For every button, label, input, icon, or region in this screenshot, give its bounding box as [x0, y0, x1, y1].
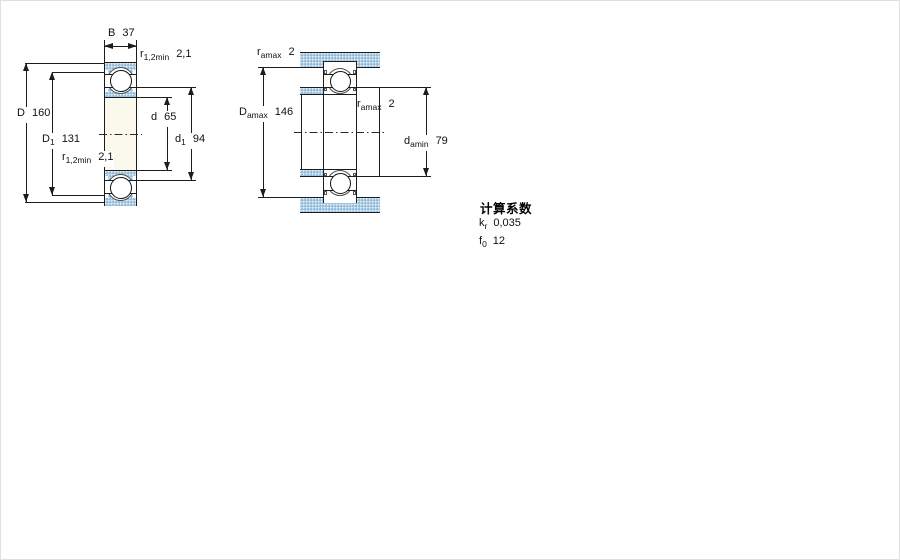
- arrowhead: [128, 43, 137, 49]
- ring-recess-notch: [133, 194, 136, 198]
- dim-label-d: d65: [150, 111, 177, 127]
- extension-line: [25, 202, 104, 203]
- dimension-line-da: [426, 87, 427, 176]
- center-line: [99, 134, 142, 135]
- ring-recess-notch: [105, 176, 108, 180]
- dim-label-r-top: r1,2min2,1: [140, 48, 191, 64]
- calc-factor-f0: f012: [479, 235, 505, 249]
- ring-recess-notch: [324, 173, 327, 176]
- ball-bottom: [330, 173, 351, 194]
- arrowhead: [104, 43, 113, 49]
- arrowhead: [260, 189, 266, 197]
- extension-line: [357, 176, 431, 177]
- ball-top: [110, 70, 132, 92]
- ring-recess-notch: [133, 70, 136, 74]
- arrowhead: [164, 162, 170, 170]
- extension-line: [25, 63, 104, 64]
- arrowhead: [188, 172, 194, 180]
- calc-factor-kr: kr0,035: [479, 217, 521, 231]
- dim-label-d1: d194: [174, 133, 206, 149]
- ring-recess-notch: [353, 191, 356, 195]
- ring-recess-notch: [353, 70, 356, 74]
- arrowhead: [423, 87, 429, 95]
- dim-label-ra-top: ramax2: [257, 46, 295, 62]
- arrowhead: [23, 194, 29, 202]
- dim-label-D1: D1131: [41, 133, 81, 149]
- bearing-datasheet-drawing: B37 r1,2min2,1 D160 D1131 d65 d194 r1,2m…: [0, 0, 900, 560]
- shaft-shoulder-top: [300, 87, 324, 95]
- ring-recess-notch: [105, 194, 108, 198]
- extension-line: [357, 87, 431, 88]
- ring-recess-notch: [105, 70, 108, 74]
- arrowhead: [188, 87, 194, 95]
- ring-recess-notch: [324, 70, 327, 74]
- ball-bottom: [110, 177, 132, 199]
- dim-label-B: B37: [108, 27, 135, 43]
- dimension-line-Da: [263, 67, 264, 197]
- ring-recess-notch: [324, 191, 327, 195]
- arrowhead: [423, 168, 429, 176]
- ring-recess-notch: [105, 88, 108, 92]
- dim-label-ra-mid: ramax2: [357, 98, 395, 114]
- arrowhead: [23, 63, 29, 71]
- ball-top: [330, 71, 351, 92]
- ring-recess-notch: [353, 173, 356, 176]
- arrowhead: [260, 67, 266, 75]
- ring-recess-notch: [353, 88, 356, 91]
- dim-label-da: damin79: [403, 135, 449, 151]
- extension-line: [52, 195, 104, 196]
- calc-factors-title: 计算系数: [480, 198, 532, 217]
- arrowhead: [164, 97, 170, 105]
- dimension-line-D: [26, 63, 27, 202]
- arrowhead: [49, 72, 55, 80]
- extension-line: [137, 170, 172, 171]
- extension-line: [52, 72, 104, 73]
- ring-recess-notch: [324, 88, 327, 91]
- ring-recess-notch: [133, 176, 136, 180]
- dim-label-r-bottom: r1,2min2,1: [61, 151, 114, 167]
- dim-label-D: D160: [16, 107, 51, 123]
- extension-line: [258, 197, 300, 198]
- center-line: [294, 132, 386, 133]
- dimension-line-d: [167, 97, 168, 170]
- shaft-shoulder-bottom: [300, 169, 324, 177]
- dim-label-Da: Damax146: [238, 106, 294, 122]
- extension-line: [137, 180, 196, 181]
- ring-recess-notch: [133, 88, 136, 92]
- arrowhead: [49, 187, 55, 195]
